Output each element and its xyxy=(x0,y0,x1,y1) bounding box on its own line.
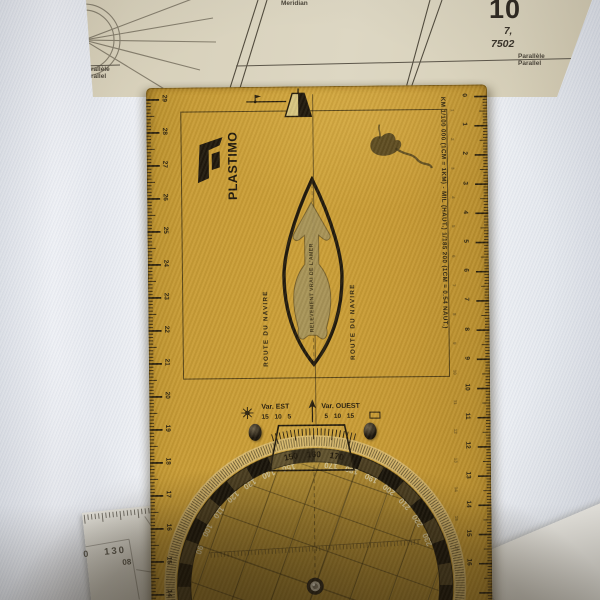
right-ruler-small-number: 10 xyxy=(452,368,457,378)
course-window-number: 160 xyxy=(307,449,322,459)
star-icon xyxy=(240,406,254,420)
left-ruler-number: 14 xyxy=(166,587,173,599)
left-ruler-number: 29 xyxy=(161,92,168,104)
plastimo-navigation-plotter: PLASTIMO RELEVEMENT VRAI DE L'AMER ROUTE… xyxy=(146,84,493,600)
left-ruler-number: 27 xyxy=(161,158,168,170)
lighthouse-icon xyxy=(246,88,326,125)
right-ruler-small-number: 14 xyxy=(454,484,459,494)
right-ruler-number: 6 xyxy=(462,264,469,276)
right-ruler-small-number: 4 xyxy=(451,192,456,202)
route-label-left: ROUTE DU NAVIRE xyxy=(262,290,270,367)
right-ruler-number: 14 xyxy=(465,498,472,510)
island-sketch-icon xyxy=(365,122,436,185)
rectangle-symbol xyxy=(369,412,380,419)
left-ruler-number: 26 xyxy=(162,191,169,203)
parallele-text: Parallèle xyxy=(518,53,545,60)
chart-ref-small: 7, xyxy=(504,26,512,37)
right-ruler-number: 16 xyxy=(465,556,472,568)
variation-east-label: Var. EST xyxy=(261,404,289,411)
right-ruler-number: 4 xyxy=(462,206,469,218)
under-ruler-number: 130 xyxy=(104,545,127,558)
right-ruler-small-number: 13 xyxy=(453,455,458,465)
right-ruler-small-number: 5 xyxy=(451,222,456,232)
left-ruler-number: 16 xyxy=(165,521,172,533)
right-ruler-number: 2 xyxy=(461,148,468,160)
left-ruler-number: 25 xyxy=(162,224,169,236)
under-ruler-number: 08 xyxy=(122,557,132,567)
left-ruler-number: 23 xyxy=(163,290,170,302)
left-ruler-number: 17 xyxy=(165,488,172,500)
chart-ref-number: 7502 xyxy=(491,38,514,50)
right-ruler-number: 12 xyxy=(464,440,471,452)
left-ruler-number: 19 xyxy=(164,422,171,434)
left-ruler-number: 20 xyxy=(164,389,171,401)
left-ruler-number: 22 xyxy=(163,323,170,335)
photo-scene: Meridien Meridian Parallèle Parallel Par… xyxy=(0,0,600,600)
under-ruler-number: 0 xyxy=(83,549,89,559)
variation-east-scale: 15 10 5 xyxy=(261,413,291,420)
north-arrow-icon xyxy=(305,399,319,423)
bearing-window-label: RELEVEMENT VRAI DE L'AMER xyxy=(309,243,316,332)
route-label-right: ROUTE DU NAVIRE xyxy=(349,283,357,360)
brand-name: PLASTIMO xyxy=(225,131,240,200)
right-ruler-small-number: 11 xyxy=(453,397,458,407)
right-ruler-small-number: 3 xyxy=(450,163,455,173)
right-ruler-small-number: 9 xyxy=(452,338,457,348)
left-ruler-number: 21 xyxy=(163,356,170,368)
parallel-text: Parallel xyxy=(518,60,545,67)
parallel-label-right: Parallèle Parallel xyxy=(518,53,545,67)
right-ruler-number: 10 xyxy=(464,381,471,393)
plastimo-logo-icon xyxy=(193,135,228,191)
variation-west-label: Var. OUEST xyxy=(321,403,360,410)
right-ruler-number: 13 xyxy=(465,469,472,481)
left-ruler-number: 18 xyxy=(164,455,171,467)
course-window-frame xyxy=(270,425,354,471)
right-ruler-number: 5 xyxy=(462,235,469,247)
right-ruler-small-number: 12 xyxy=(453,426,458,436)
left-ruler-number: 15 xyxy=(165,554,172,566)
right-ruler-number: 7 xyxy=(463,294,470,306)
meridian-label: Meridian xyxy=(281,0,308,7)
variation-west-scale: 5 10 15 xyxy=(324,413,354,420)
meridian-lines xyxy=(230,0,442,88)
right-ruler-small-number: 1 xyxy=(450,105,455,115)
course-window: 150160170 xyxy=(264,422,361,475)
right-ruler-number: 9 xyxy=(463,352,470,364)
right-ruler-small-number: 2 xyxy=(450,134,455,144)
right-ruler-small-number: 6 xyxy=(451,251,456,261)
right-ruler-small-number: 7 xyxy=(452,280,457,290)
left-ruler-number: 24 xyxy=(162,257,169,269)
chart-sheet-number: 10 xyxy=(489,0,521,25)
right-ruler-number: 3 xyxy=(461,177,468,189)
right-ruler-number: 1 xyxy=(461,118,468,130)
right-ruler-number: 15 xyxy=(465,527,472,539)
right-ruler-small-number: 16 xyxy=(454,543,459,553)
right-ruler-small-number: 8 xyxy=(452,309,457,319)
right-ruler-small-number: 15 xyxy=(454,514,459,524)
right-ruler-number: 8 xyxy=(463,323,470,335)
left-cm-ruler-numbers: 29282726252423222120191817161514 xyxy=(146,88,182,600)
right-ruler-number: 11 xyxy=(464,410,471,422)
left-ruler-number: 28 xyxy=(161,125,168,137)
right-ruler-number: 0 xyxy=(461,89,468,101)
